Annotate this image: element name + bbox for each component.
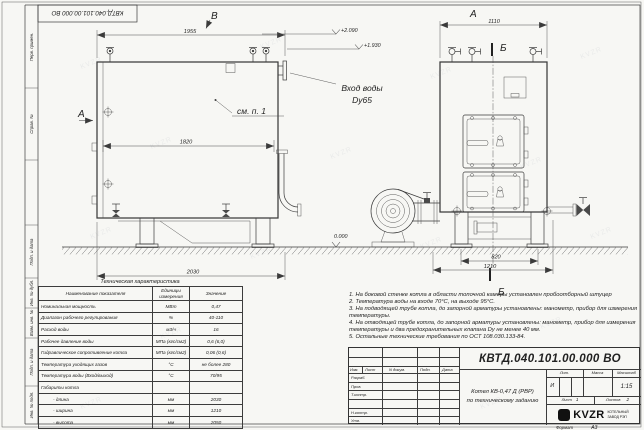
margin-podp-data-1: Подп. и дата bbox=[29, 238, 34, 266]
dim-1110: 1110 bbox=[488, 19, 501, 25]
format-note: Формат А3 bbox=[556, 425, 642, 430]
dim-2030: 2030 bbox=[186, 270, 200, 276]
spec-row: Температура воды (Вход/выход)°С70/95 bbox=[39, 370, 243, 382]
ground-line bbox=[62, 247, 628, 254]
elev-zero: 0.000 bbox=[334, 234, 348, 240]
drawing-title-line2: по техническому заданию bbox=[467, 397, 539, 406]
tb-scale-label: Масштаб bbox=[612, 369, 641, 377]
spec-header-row: Наименование показателя Единицы измерени… bbox=[39, 287, 243, 301]
tb-sheet-label: Лист bbox=[562, 398, 572, 402]
tb-role-razrab: Разраб. bbox=[351, 375, 365, 380]
tb-role-utv: Утв. bbox=[351, 418, 360, 423]
tb-sheet-value: 1 bbox=[576, 398, 579, 403]
note-5: 5. Остальные технические требования по О… bbox=[349, 334, 641, 341]
view-label-B: В bbox=[211, 11, 218, 22]
spec-row: Рабочее давление водыМПа (кгс/см2)0,6 (6… bbox=[39, 335, 243, 347]
company-subtitle: КОТЕЛЬНЫЙ ЗАВОД РЭП bbox=[607, 410, 628, 418]
water-inlet-label: Вход воды bbox=[341, 83, 383, 93]
tb-role-nkontr: Н.контр. bbox=[351, 410, 368, 415]
company-name: KVZR bbox=[573, 409, 604, 421]
tb-sheets: Листов 2 bbox=[594, 396, 641, 404]
section-label-B-top: Б bbox=[500, 43, 507, 54]
drawing-title-line1: Котел КВ-0,47 Д (РВР) bbox=[471, 388, 534, 397]
tb-role-tkontr: Т.контр. bbox=[351, 392, 367, 397]
doc-number: КВТД.040.101.00.000 ВО bbox=[459, 348, 641, 369]
spec-row: Диапазон рабочего регулирования%40-110 bbox=[39, 312, 243, 324]
dim-1820: 1820 bbox=[180, 140, 193, 146]
tb-sheet: Лист 1 bbox=[546, 396, 594, 404]
margin-perv-primen: Перв. примен. bbox=[29, 33, 34, 62]
drawing-sheet: KVZRKVZRKVZRKVZRKVZRKVZRKVZRKVZRKVZRKVZR… bbox=[0, 0, 644, 430]
dim-1955: 1955 bbox=[184, 29, 197, 35]
tb-col-izm: Изм. bbox=[350, 368, 359, 372]
tb-col-dokum: N докум. bbox=[389, 368, 405, 372]
spec-table: Техническая характеристика Наименование … bbox=[38, 279, 242, 429]
title-block: Изм. Лист N докум. Подп. Дата Разраб. Пр… bbox=[348, 347, 640, 424]
tb-sheets-label: Листов bbox=[606, 398, 621, 402]
tb-col-data: Дата bbox=[442, 368, 453, 372]
spec-row: - ширинамм1210 bbox=[39, 405, 243, 417]
tb-mass-label: Масса bbox=[583, 369, 612, 377]
note-3: 3. На подводящей трубе котла, до запорно… bbox=[349, 306, 641, 319]
tb-lit-label: Лит. bbox=[546, 369, 583, 377]
note-2: 2. Температура воды на входе 70°С, на вы… bbox=[349, 299, 641, 306]
dim-820: 820 bbox=[491, 255, 501, 261]
format-value: А3 bbox=[591, 425, 597, 430]
view-label-A-arrow: А bbox=[77, 109, 85, 120]
margin-vzam-inv: Взам. инв. № bbox=[29, 309, 34, 336]
technical-notes: 1. На боковой стенке котла в области топ… bbox=[349, 292, 641, 341]
note-1: 1. На боковой стенке котла в области топ… bbox=[349, 292, 641, 299]
margin-labels: Перв. примен. Справ. № Подп. и дата Инв.… bbox=[29, 33, 34, 419]
spec-row: Температура уходящих газов°Сне более 280 bbox=[39, 358, 243, 370]
boiler-side-view bbox=[92, 48, 301, 248]
view-label-A: А bbox=[469, 9, 477, 20]
margin-inv-dubl: Инв. № дубл. bbox=[29, 280, 34, 306]
dim-1210: 1210 bbox=[484, 264, 497, 270]
margin-inv-podl: Инв. № подл. bbox=[29, 392, 34, 419]
tb-lit-value: И bbox=[546, 377, 559, 396]
spec-row: - длинамм2030 bbox=[39, 393, 243, 405]
margin-sprav-no: Справ. № bbox=[29, 114, 34, 134]
tb-sheets-value: 2 bbox=[627, 398, 630, 403]
margin-podp-data-2: Подп. и дата bbox=[29, 348, 34, 376]
spec-table-title: Техническая характеристика bbox=[38, 279, 242, 285]
spec-row: Гидравлическое сопротивление котлаМПа (к… bbox=[39, 347, 243, 359]
spec-row: Номинальная мощностьМВт0,47 bbox=[39, 301, 243, 313]
elev-mid: +1.930 bbox=[364, 43, 381, 49]
callout-see-note: см. п. 1 bbox=[237, 106, 266, 116]
company-logo-icon bbox=[558, 409, 570, 421]
spec-col-units: Единицы измерения bbox=[153, 287, 190, 301]
drawing-title: Котел КВ-0,47 Д (РВР) по техническому за… bbox=[459, 369, 546, 425]
spec-col-name: Наименование показателя bbox=[39, 287, 153, 301]
company-logo: KVZR КОТЕЛЬНЫЙ ЗАВОД РЭП bbox=[546, 404, 641, 425]
spec-row: Габариты котла bbox=[39, 382, 243, 394]
note-4: 4. На отводящей трубе котла, до запорной… bbox=[349, 320, 641, 333]
tb-col-list: Лист bbox=[365, 368, 375, 372]
tb-role-prov: Пров. bbox=[351, 384, 362, 389]
spec-row: - высотамм2050 bbox=[39, 416, 243, 428]
stamp-code: КВТД.040.101.00.000 ВО bbox=[51, 9, 123, 16]
format-label: Формат bbox=[556, 425, 573, 430]
tb-col-podp: Подп. bbox=[420, 368, 431, 372]
elev-top: +2.090 bbox=[341, 28, 358, 34]
boiler-front-view bbox=[371, 48, 590, 269]
spec-row: Расход водым3/ч16 bbox=[39, 324, 243, 336]
water-inlet-dn: Dy65 bbox=[352, 95, 372, 105]
tb-scale-value: 1:15 bbox=[612, 377, 641, 396]
spec-col-value: Значение bbox=[190, 287, 243, 301]
